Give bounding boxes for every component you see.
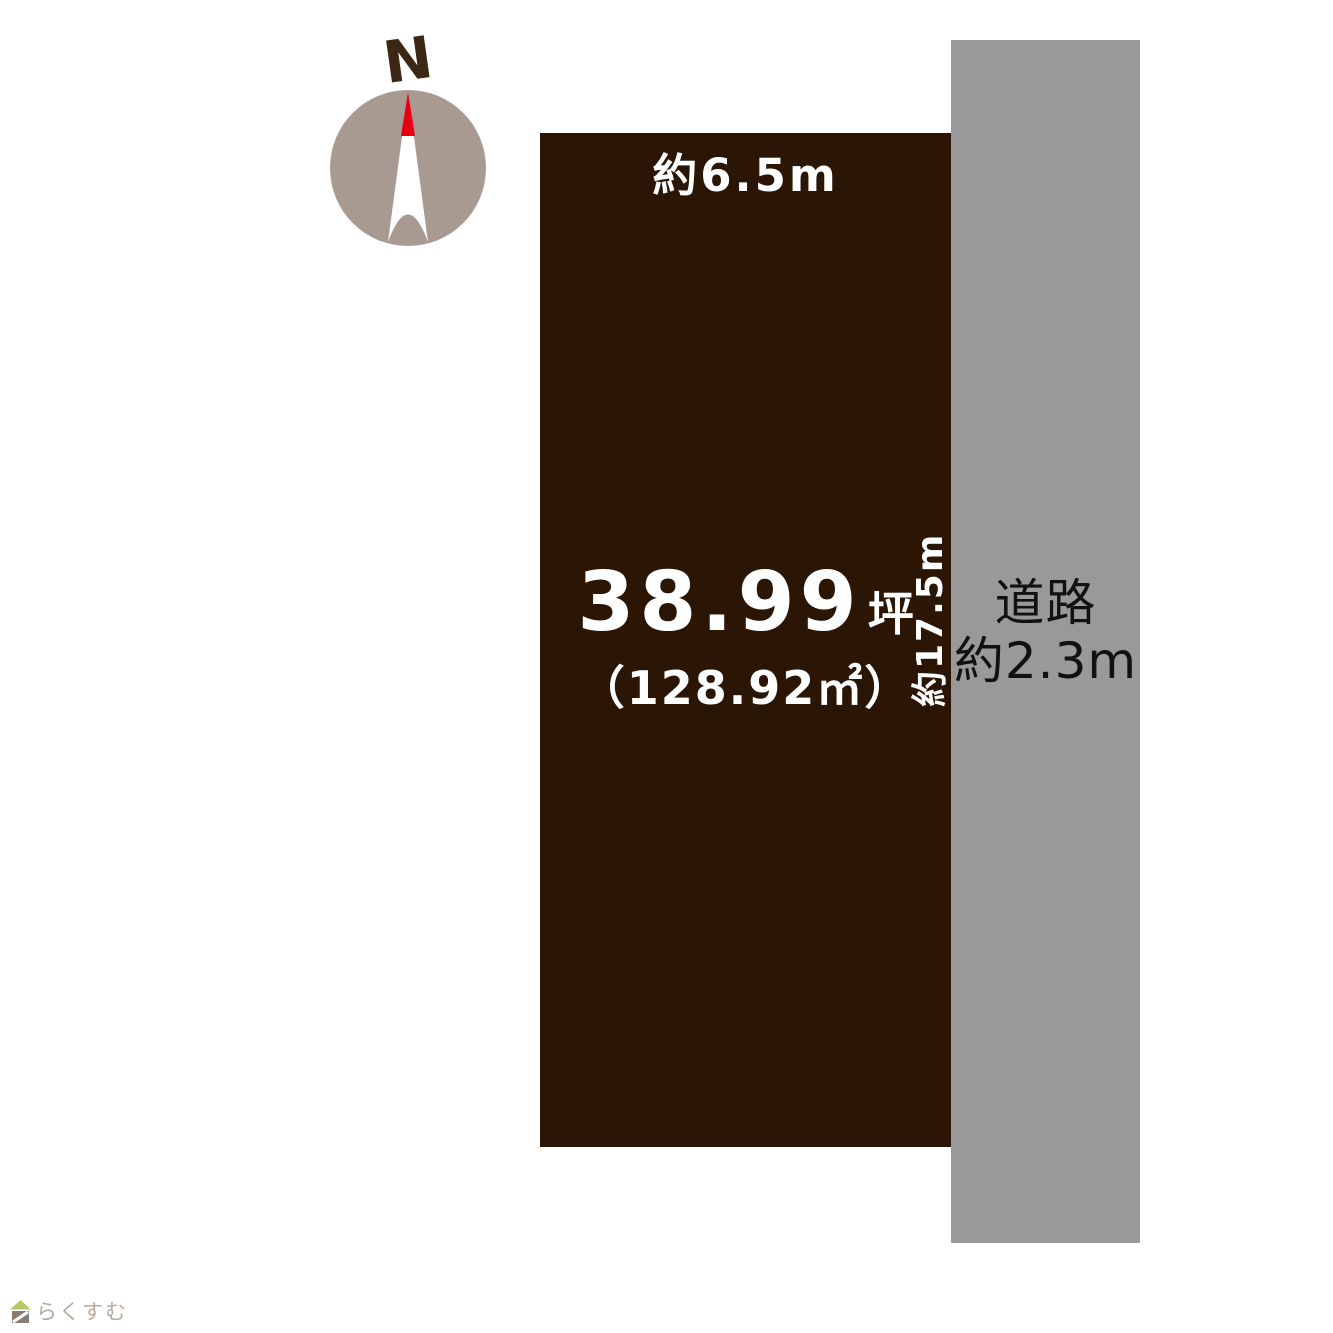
house-icon [10, 1300, 31, 1324]
compass-needle-icon [330, 90, 486, 246]
plot-area-tsubo-value: 38.99 [577, 562, 861, 644]
plot-area-sqm: （128.92㎡） [579, 652, 913, 718]
road-name: 道路 [951, 574, 1140, 632]
plot-depth-dimension: 約17.5m [910, 547, 952, 707]
plot-area-tsubo-line: 38.99 坪 [577, 562, 913, 644]
brand-logo: らくすむ [10, 1300, 128, 1324]
road-strip: 道路 約2.3m [951, 40, 1140, 1243]
north-label: N [327, 23, 489, 96]
plot-area-label: 38.99 坪 （128.92㎡） [540, 133, 951, 1147]
road-width: 約2.3m [951, 632, 1140, 690]
road-label: 道路 約2.3m [951, 574, 1140, 690]
land-plot: 約6.5m 38.99 坪 （128.92㎡） 約17.5m [540, 133, 951, 1147]
plot-area-tsubo-unit: 坪 [868, 578, 914, 644]
site-plan-diagram: 道路 約2.3m 約6.5m 38.99 坪 （128.92㎡） 約17.5m … [0, 0, 1333, 1333]
compass: N [330, 40, 486, 250]
brand-name: らくすむ [36, 1300, 128, 1324]
